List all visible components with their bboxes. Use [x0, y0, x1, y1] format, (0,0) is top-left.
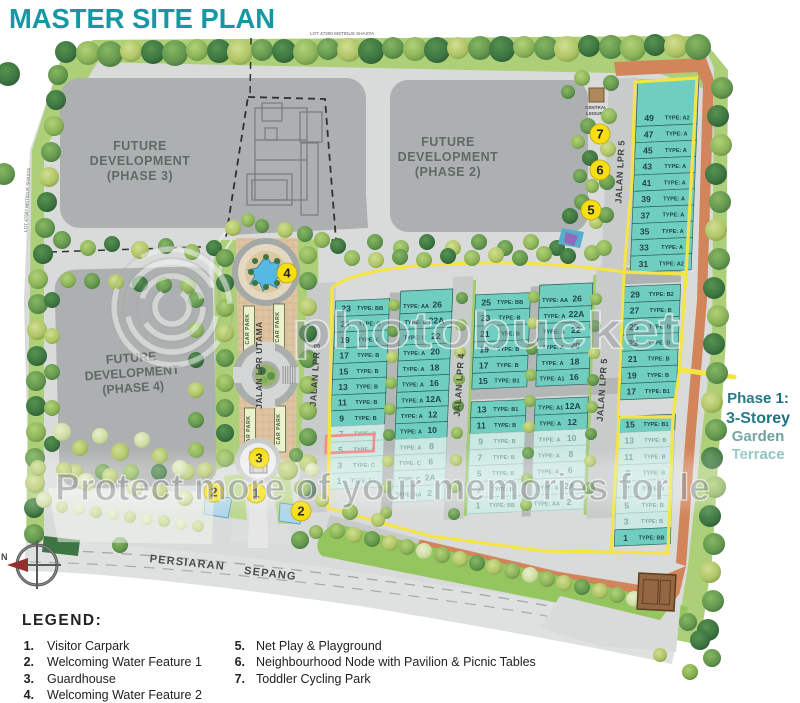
svg-text:5.: 5. [235, 639, 245, 653]
svg-text:Welcoming Water Feature 1: Welcoming Water Feature 1 [47, 655, 202, 669]
svg-text:7.: 7. [235, 672, 245, 686]
svg-text:MASTER SITE PLAN: MASTER SITE PLAN [9, 3, 275, 34]
svg-text:LEGEND:: LEGEND: [22, 612, 102, 629]
svg-text:Neighbourhood Node with Pavili: Neighbourhood Node with Pavilion & Picni… [256, 655, 536, 669]
svg-text:Guardhouse: Guardhouse [47, 672, 116, 686]
svg-text:Welcoming Water Feature 2: Welcoming Water Feature 2 [47, 688, 202, 702]
svg-text:3.: 3. [24, 672, 34, 686]
svg-text:4.: 4. [24, 688, 34, 702]
svg-text:Visitor Carpark: Visitor Carpark [47, 639, 130, 653]
svg-text:2.: 2. [24, 655, 34, 669]
svg-text:Net Play & Playground: Net Play & Playground [256, 639, 382, 653]
svg-text:LOT 47200 MSTIDUS SHASTA: LOT 47200 MSTIDUS SHASTA [310, 31, 375, 36]
svg-text:1.: 1. [24, 639, 34, 653]
svg-text:Toddler Cycling Park: Toddler Cycling Park [256, 672, 371, 686]
svg-text:6.: 6. [235, 655, 245, 669]
